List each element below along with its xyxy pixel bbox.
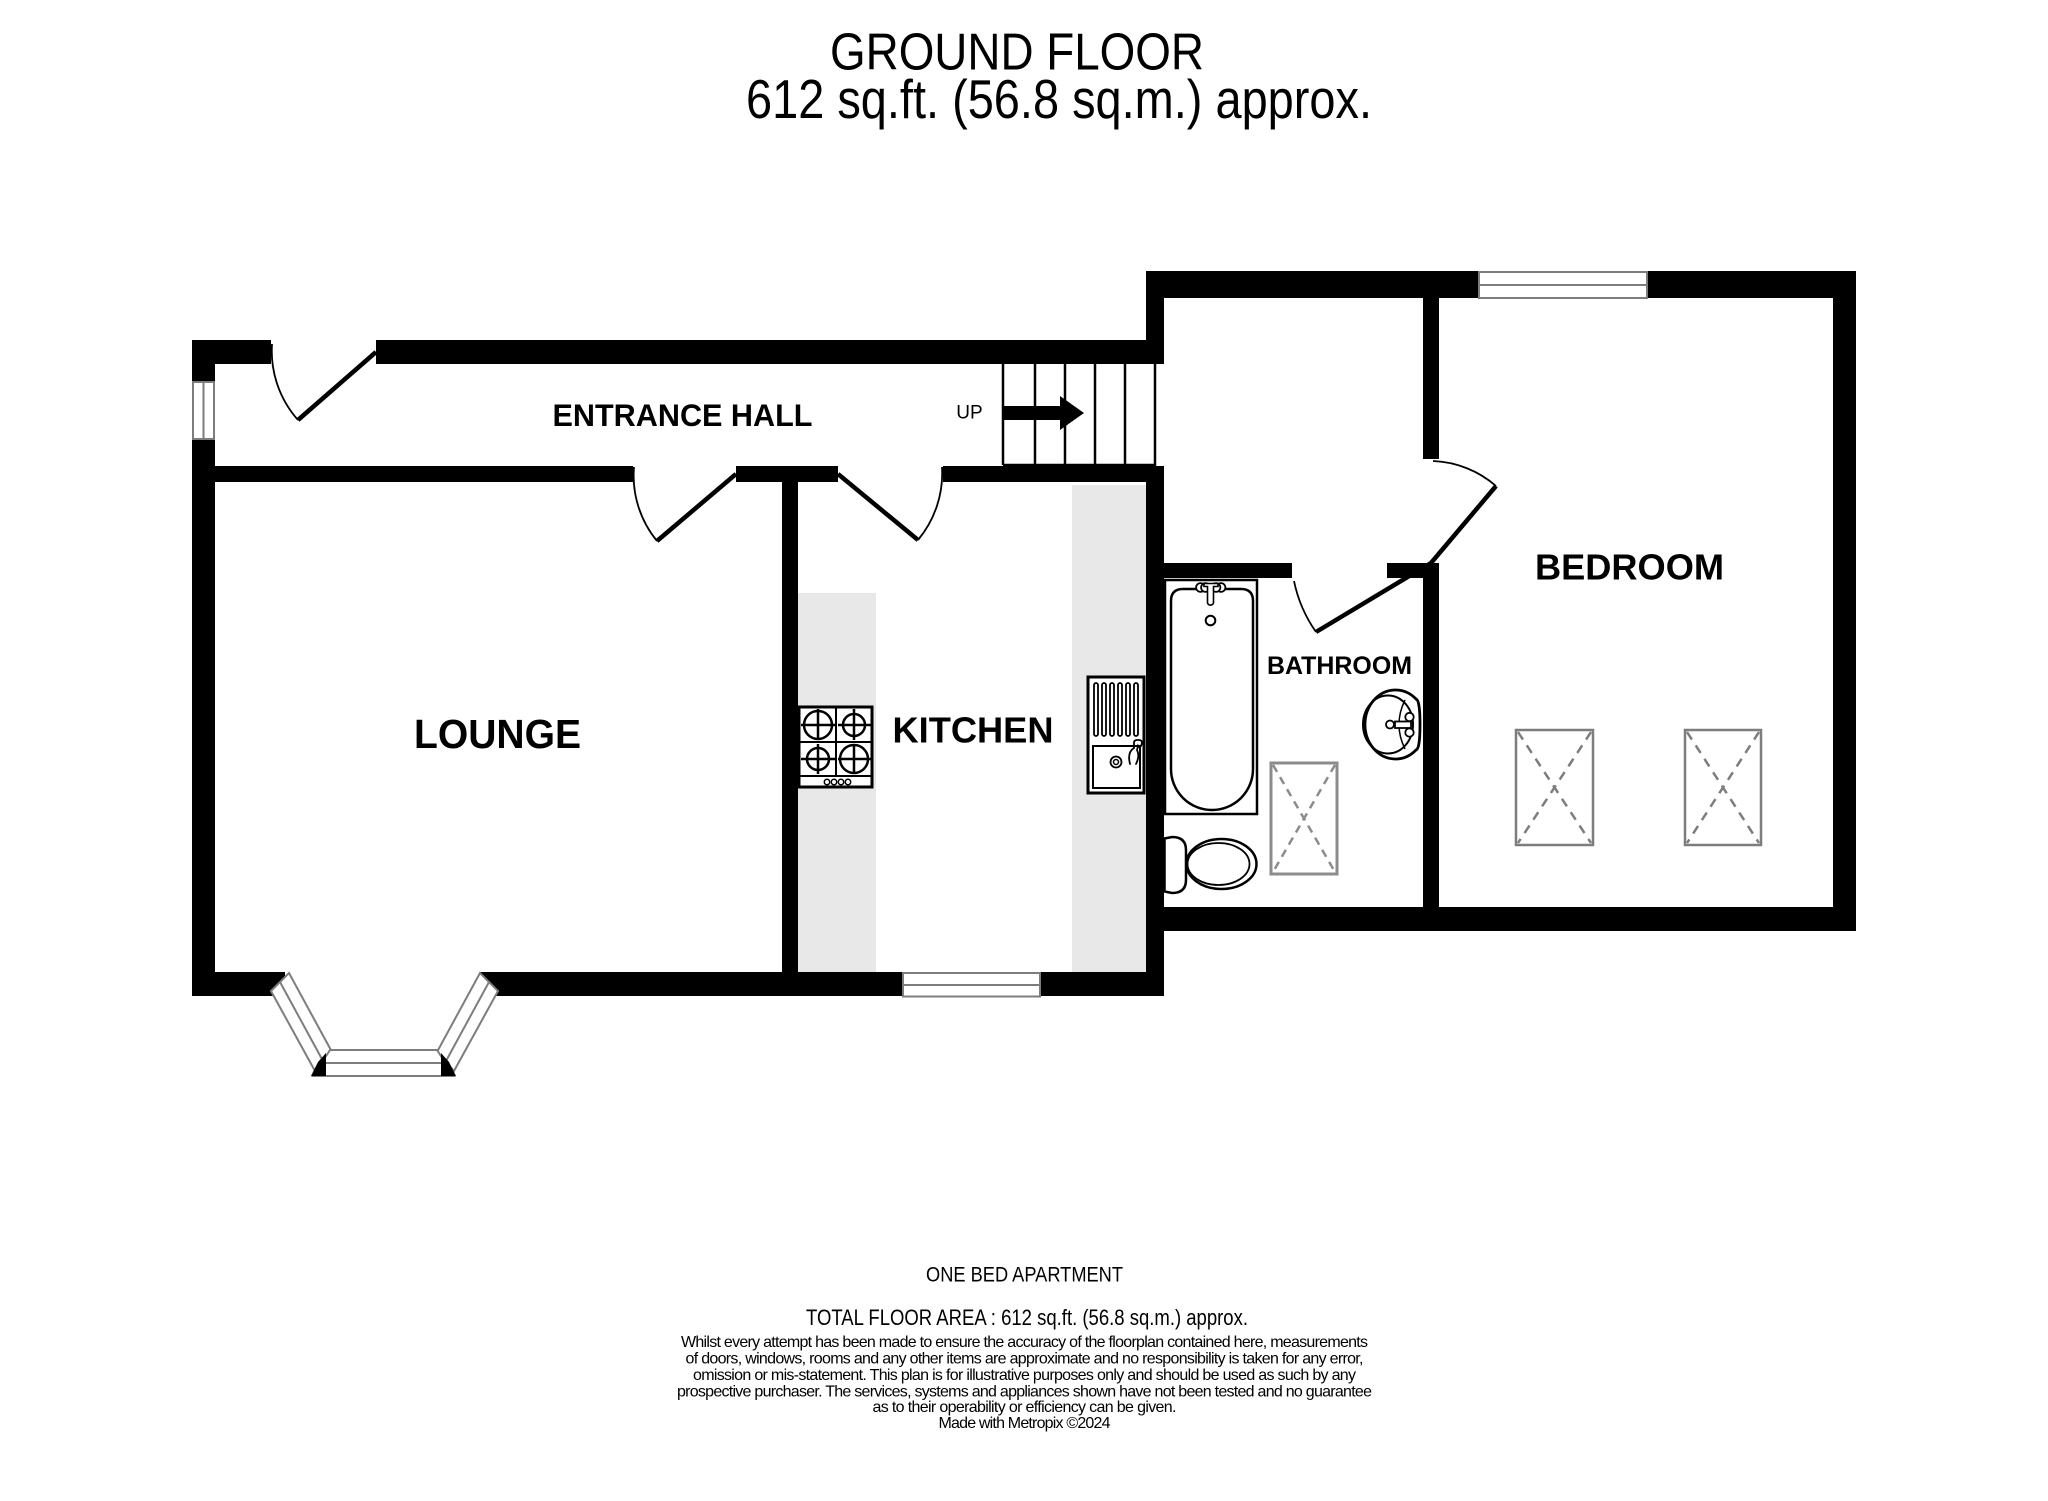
svg-text:BEDROOM: BEDROOM [1535, 547, 1724, 588]
svg-text:omission or mis-statement. Thi: omission or mis-statement. This plan is … [693, 1367, 1356, 1384]
svg-text:UP: UP [956, 403, 982, 424]
svg-text:as to their operability or eff: as to their operability or efficiency ca… [873, 1399, 1177, 1416]
svg-text:BATHROOM: BATHROOM [1267, 652, 1412, 680]
svg-text:ENTRANCE HALL: ENTRANCE HALL [553, 397, 813, 433]
svg-text:KITCHEN: KITCHEN [893, 710, 1054, 751]
svg-text:Whilst every attempt has been: Whilst every attempt has been made to en… [681, 1334, 1368, 1351]
svg-text:TOTAL FLOOR AREA : 612 sq.ft.: TOTAL FLOOR AREA : 612 sq.ft. (56.8 sq.m… [806, 1305, 1248, 1330]
svg-text:Made with Metropix ©2024: Made with Metropix ©2024 [939, 1415, 1111, 1432]
svg-text:of doors, windows, rooms and a: of doors, windows, rooms and any other i… [686, 1351, 1364, 1368]
svg-text:prospective purchaser. The ser: prospective purchaser. The services, sys… [677, 1384, 1372, 1401]
svg-text:LOUNGE: LOUNGE [414, 711, 581, 757]
svg-text:ONE BED APARTMENT: ONE BED APARTMENT [926, 1264, 1123, 1287]
svg-text:612 sq.ft. (56.8 sq.m.) approx: 612 sq.ft. (56.8 sq.m.) approx. [746, 68, 1372, 130]
